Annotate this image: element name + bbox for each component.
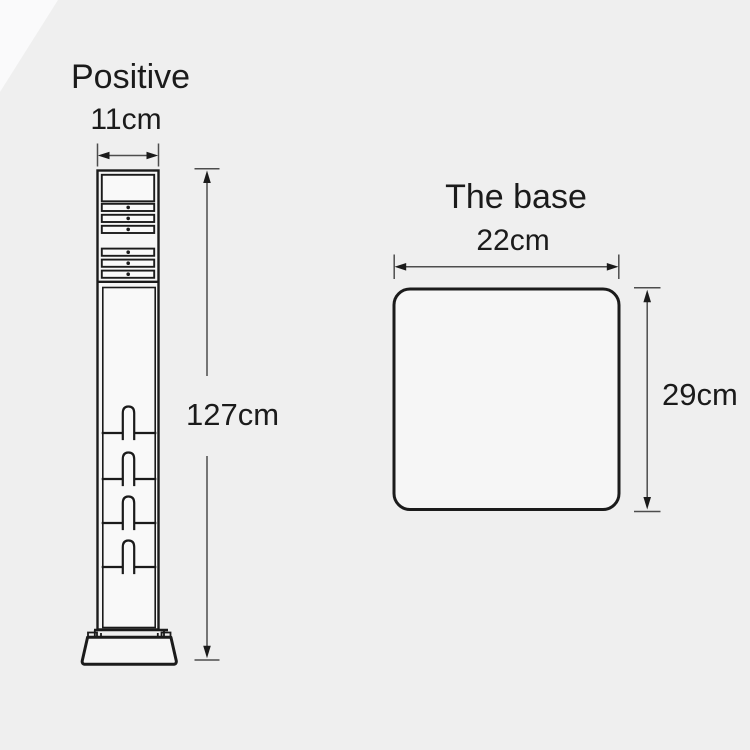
base-plate-outline (394, 289, 619, 510)
post-width-label: 11cm (90, 105, 161, 135)
post-inner-panel (103, 288, 155, 628)
base-width-label: 22cm (476, 226, 549, 256)
post-drawing (82, 171, 176, 665)
technical-diagram: Positive 11cm 127cm The base 22cm 29cm (0, 0, 750, 750)
reflective-stripes-upper (102, 204, 154, 233)
reflective-stripes-lower (102, 249, 154, 278)
base-height-label: 29cm (662, 379, 738, 410)
post-top-cap (102, 175, 154, 202)
base-title: The base (445, 180, 587, 214)
post-height-label: 127cm (186, 399, 279, 430)
foot-trapezoid (82, 637, 176, 664)
dim-arrow-post-width (98, 144, 159, 167)
corner-artifact (0, 0, 58, 92)
post-title: Positive (71, 60, 190, 94)
dim-arrow-base-width (394, 255, 619, 280)
dim-arrow-base-height (634, 288, 661, 512)
